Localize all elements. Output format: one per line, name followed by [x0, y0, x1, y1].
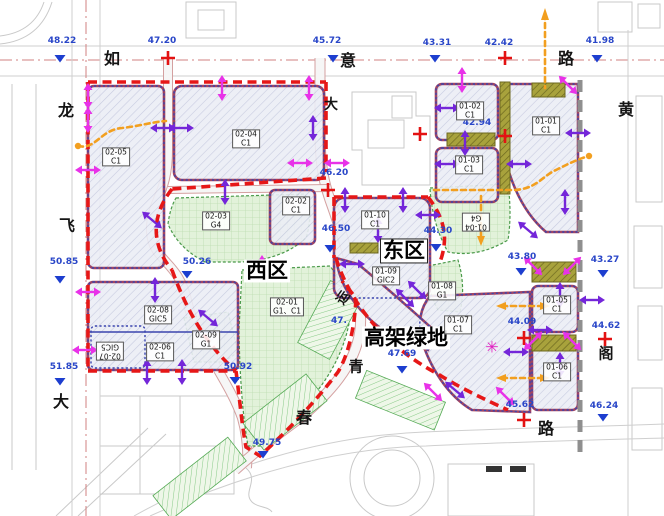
crossing-cross-icon — [498, 51, 512, 65]
survey-triangle-icon — [430, 55, 441, 63]
crossing-cross-icon — [598, 332, 612, 346]
survey-triangle-icon — [328, 55, 339, 63]
survey-triangle-icon — [592, 55, 603, 63]
survey-triangle-icon — [55, 378, 66, 386]
site-plan-map: 西区 东区 高架绿地 ✳ 48.2247.2045.7243.3142.4241… — [0, 0, 664, 516]
survey-triangle-icon — [431, 244, 442, 252]
survey-triangle-icon — [598, 414, 609, 422]
survey-triangle-icon — [55, 276, 66, 284]
survey-triangle-icon — [598, 270, 609, 278]
survey-triangle-icon — [516, 268, 527, 276]
access-arrow-icon — [324, 159, 350, 168]
survey-triangle-icon — [55, 55, 66, 63]
survey-triangle-icon — [397, 366, 408, 374]
crossing-cross-icon — [517, 413, 531, 427]
access-arrow-icon — [579, 296, 605, 305]
crossing-cross-icon — [413, 127, 427, 141]
base-map-svg — [0, 0, 664, 516]
